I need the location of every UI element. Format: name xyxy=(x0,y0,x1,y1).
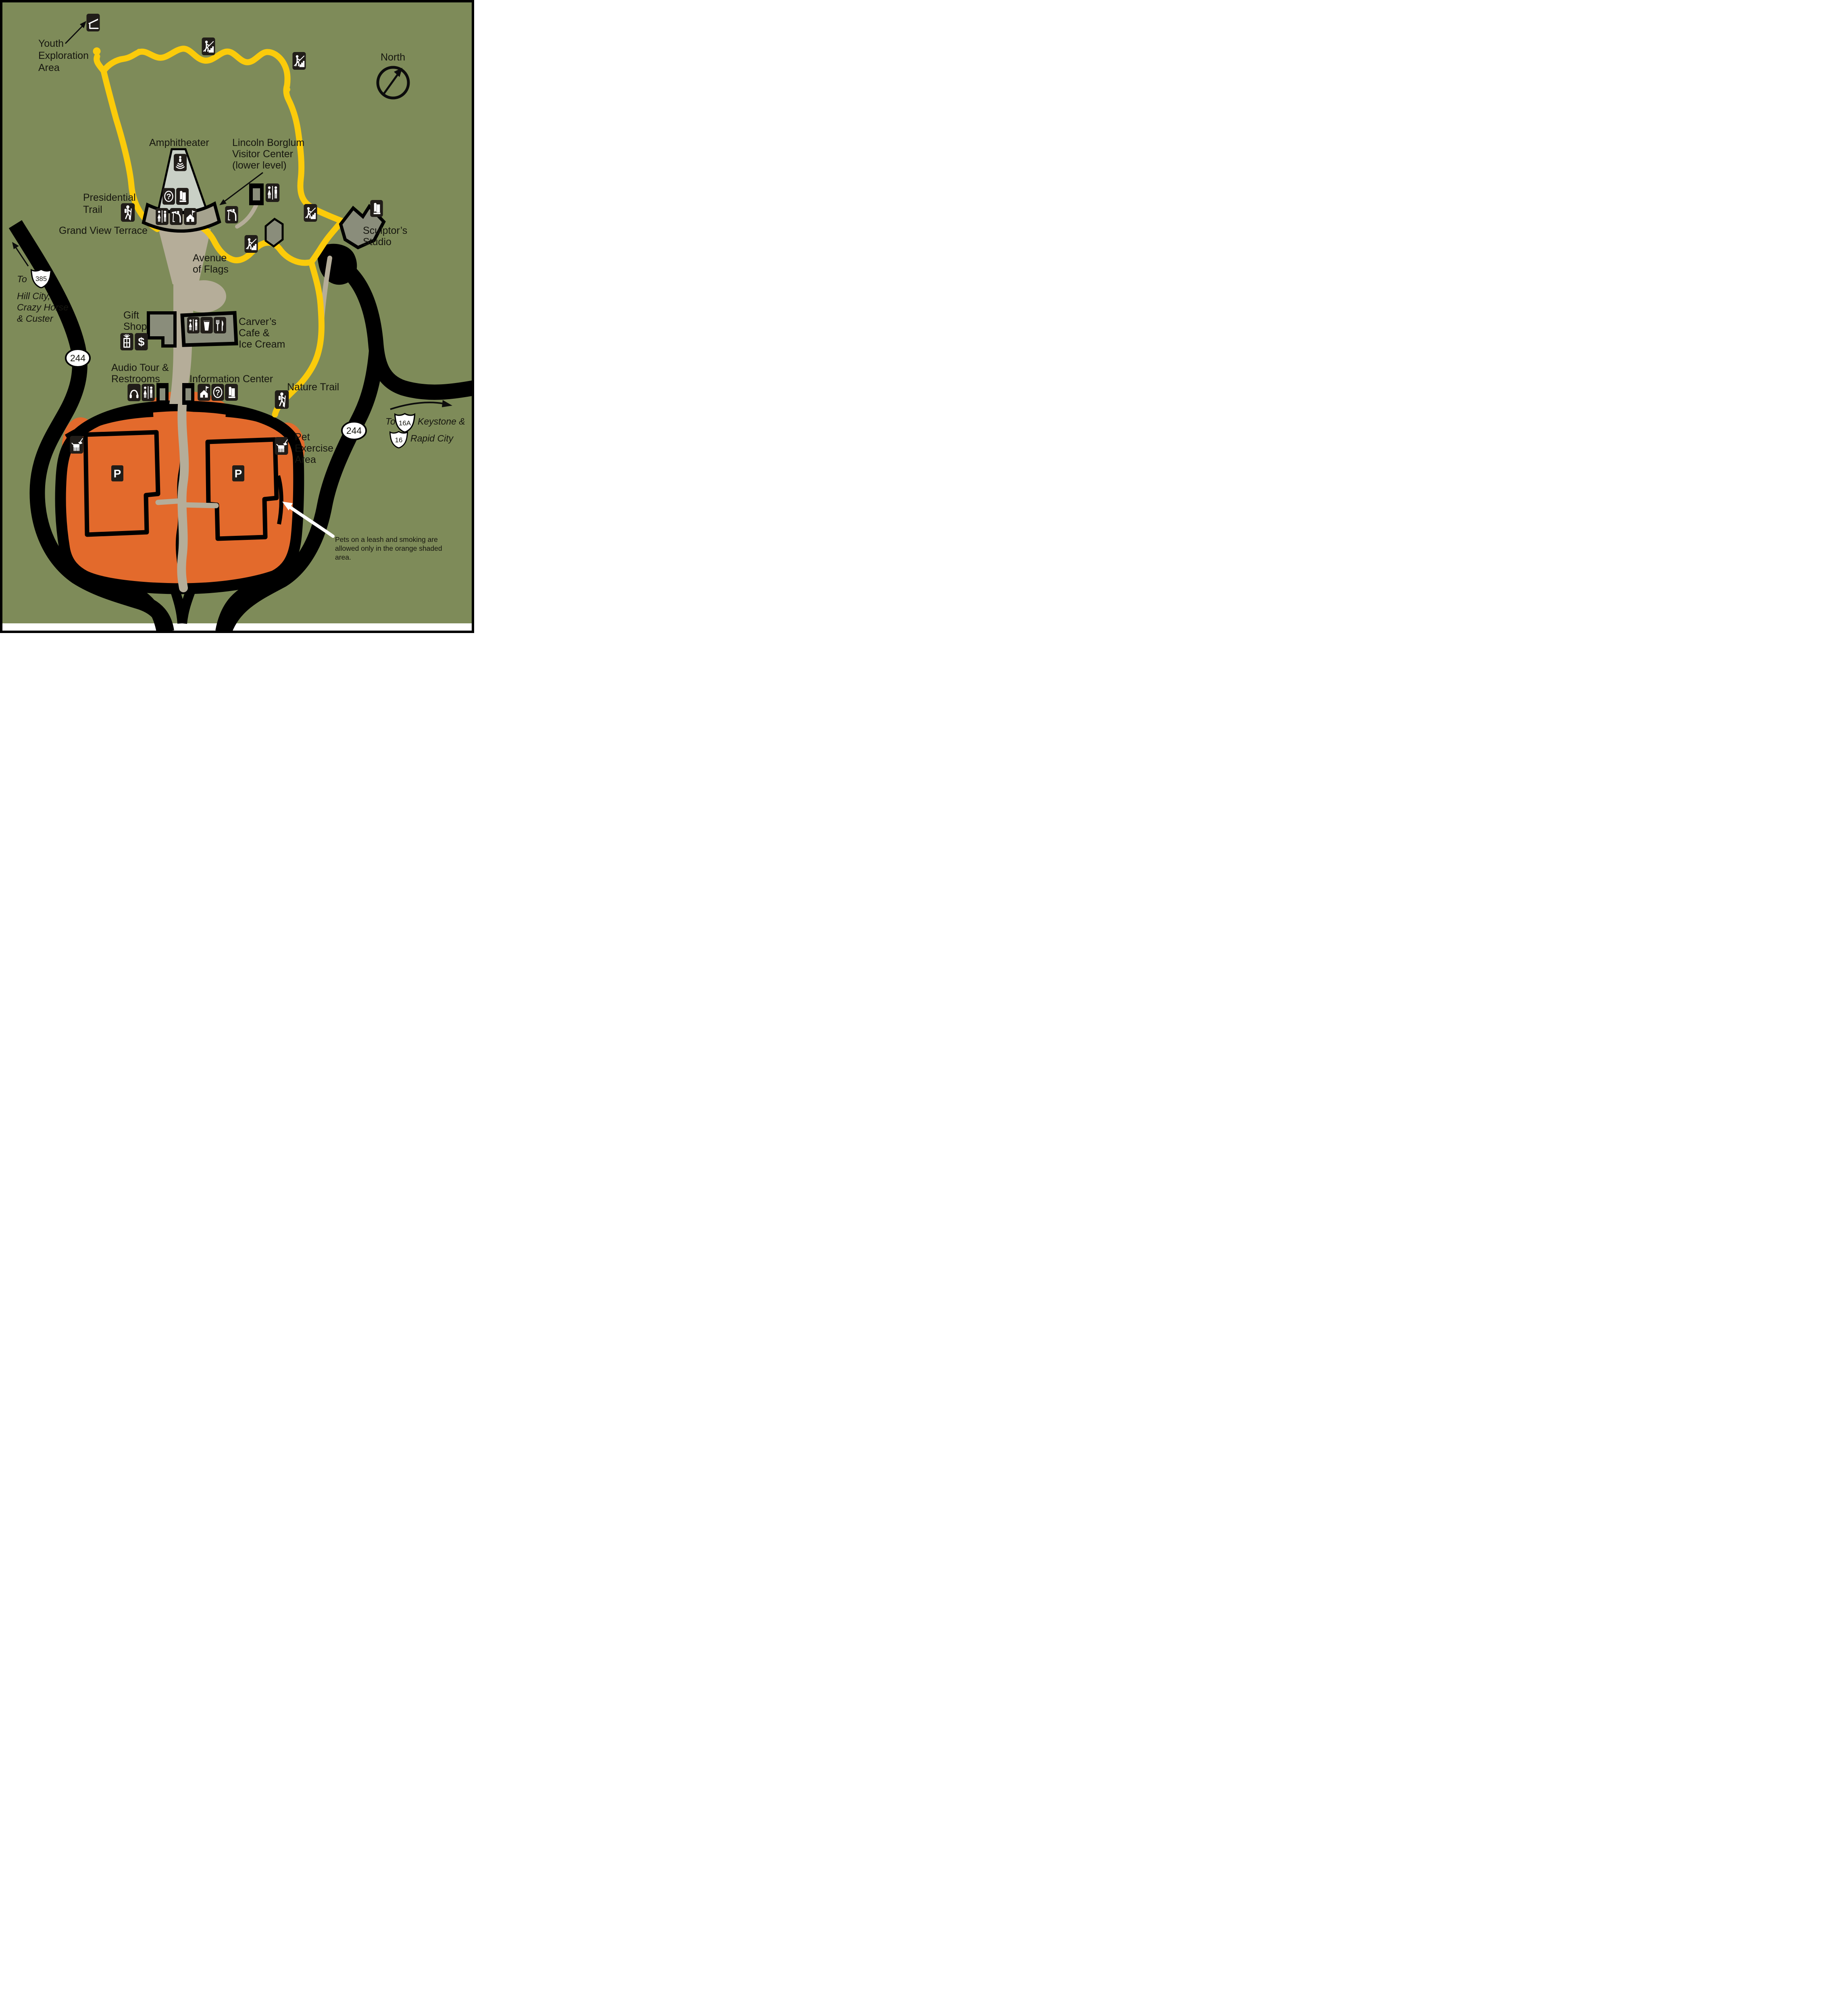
youth-area-label-3: Area xyxy=(38,62,60,73)
viewpoint-icon xyxy=(225,206,238,223)
amphitheater-label: Amphitheater xyxy=(149,137,209,148)
brochure-icon xyxy=(225,384,238,401)
restrooms-icon xyxy=(142,384,154,401)
map-canvas: ? $ xyxy=(0,0,474,633)
pets-note-line-1: Pets on a leash and smoking are xyxy=(335,535,438,544)
fork-knife-icon xyxy=(214,317,226,333)
crazy-horse-label: Crazy Horse xyxy=(17,302,69,312)
brochure-icon xyxy=(370,200,383,217)
visitor-center-label-1: Lincoln Borglum xyxy=(232,137,304,148)
custer-label: & Custer xyxy=(17,313,54,324)
gift-icon xyxy=(120,333,133,350)
restrooms-icon xyxy=(187,317,200,333)
hiker-icon xyxy=(275,390,289,409)
restroom-building-north xyxy=(249,183,264,205)
gift-shop-label-1: Gift xyxy=(123,310,139,321)
stairs-icon xyxy=(245,235,258,253)
visitor-center-label-3: (lower level) xyxy=(232,160,287,171)
dog-on-leash-icon xyxy=(70,436,83,454)
gift-shop-label-2: Shop xyxy=(123,321,147,332)
dog-on-leash-icon xyxy=(275,437,288,455)
historic-building-flag-icon xyxy=(198,384,210,401)
historic-building-flag-icon xyxy=(184,208,197,225)
carvers-cafe-label-3: Ice Cream xyxy=(239,339,285,350)
kiosk-east xyxy=(182,383,194,405)
pet-exercise-label-2: Exercise xyxy=(295,443,333,454)
shelter-icon xyxy=(87,14,100,31)
to-385-label: To xyxy=(17,274,27,284)
parking-lot-west xyxy=(85,432,158,535)
route-244-label: 244 xyxy=(70,353,86,363)
pets-note-line-3: area. xyxy=(335,553,351,561)
stairs-icon xyxy=(293,52,306,70)
nature-trail-label: Nature Trail xyxy=(287,381,339,393)
pets-note-line-2: allowed only in the orange shaded xyxy=(335,544,442,552)
route-244-label: 244 xyxy=(346,425,362,436)
stairs-icon xyxy=(202,37,215,55)
hiker-icon xyxy=(121,203,135,222)
information-center-label: Information Center xyxy=(189,373,273,385)
visitor-center-label-2: Visitor Center xyxy=(232,148,293,160)
amphitheater-speaker-icon xyxy=(174,154,187,171)
stairs-icon xyxy=(304,204,317,222)
parking-lot-east xyxy=(208,439,277,539)
north-label: North xyxy=(381,52,405,63)
hill-city-label: Hill City, xyxy=(17,291,50,301)
trail-building xyxy=(266,219,283,246)
pet-exercise-label-3: Area xyxy=(295,454,316,465)
sculptors-studio-label-1: Sculptor’s xyxy=(363,225,407,236)
audio-tour-label-1: Audio Tour & xyxy=(111,362,169,373)
restrooms-icon xyxy=(266,183,280,202)
drink-cup-icon xyxy=(200,317,213,333)
brochure-icon xyxy=(176,188,189,205)
viewpoint-icon xyxy=(170,208,183,225)
sculptors-studio-label-2: Studio xyxy=(363,236,391,248)
restrooms-icon xyxy=(156,208,169,225)
presidential-trail-label-2: Trail xyxy=(83,204,102,215)
carvers-cafe-label-1: Carver’s xyxy=(239,316,277,327)
route-385-label: 385 xyxy=(35,275,47,283)
carvers-cafe-label-2: Cafe & xyxy=(239,327,270,339)
avenue-of-flags-label-2: of Flags xyxy=(193,264,229,275)
parking-icon xyxy=(232,465,244,481)
route-shield-244-west: 244 xyxy=(66,349,90,367)
park-map: ? $ xyxy=(0,0,474,633)
youth-area-label-1: Youth xyxy=(38,38,64,49)
rapid-city-label: Rapid City xyxy=(410,433,454,444)
kiosk-west xyxy=(156,383,169,405)
bottom-margin xyxy=(2,623,473,631)
route-shield-244-east: 244 xyxy=(342,422,366,439)
keystone-label: Keystone & xyxy=(418,416,465,427)
parking-icon xyxy=(111,465,123,481)
headphones-icon xyxy=(127,384,140,401)
to-16-label: To xyxy=(385,416,396,427)
route-16a-label: 16A xyxy=(399,419,411,427)
avenue-of-flags-label-1: Avenue xyxy=(193,252,227,264)
grand-view-terrace-label: Grand View Terrace xyxy=(59,225,148,236)
question-icon xyxy=(211,384,224,401)
pet-exercise-label-1: Pet xyxy=(295,431,310,443)
audio-tour-label-2: Restrooms xyxy=(111,373,160,385)
question-icon xyxy=(162,188,175,204)
youth-area-label-2: Exploration xyxy=(38,50,89,61)
route-16-label: 16 xyxy=(395,436,403,444)
dollar-icon xyxy=(135,333,148,350)
presidential-trail-label-1: Presidential xyxy=(83,192,136,203)
